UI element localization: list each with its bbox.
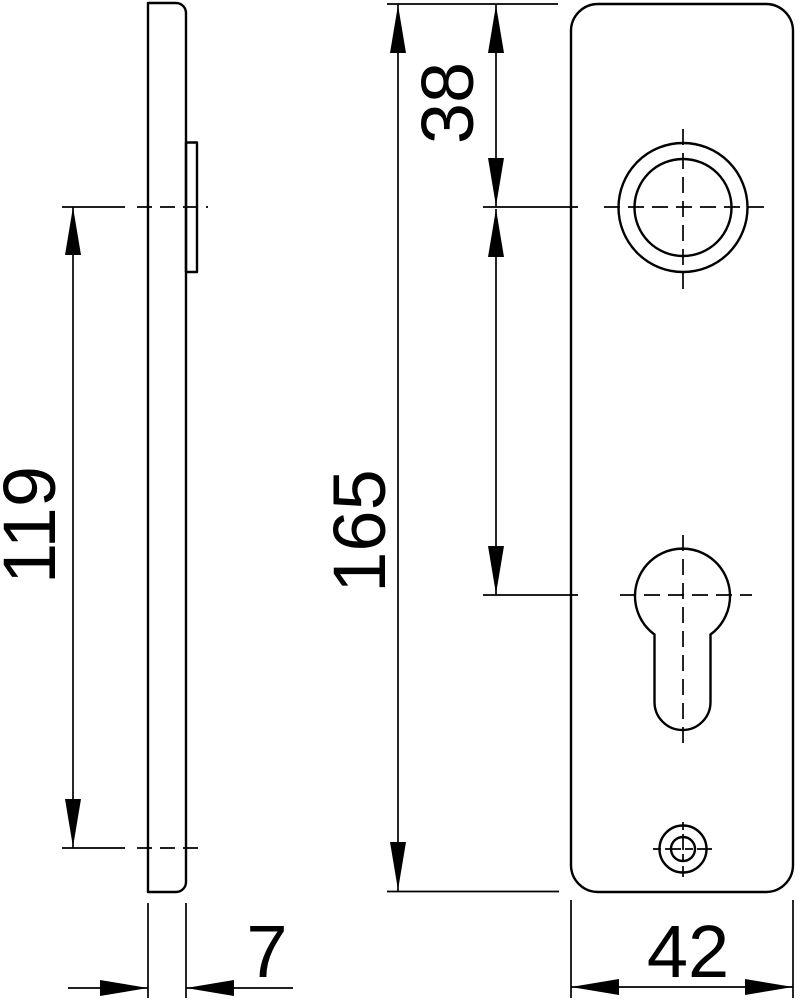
side-view: [137, 3, 208, 892]
dimension-label-7: 7: [246, 910, 287, 993]
side-plate-outline: [148, 3, 186, 892]
dim-mid-arrow-up: [488, 209, 504, 257]
front-plate-outline: [571, 4, 793, 892]
dim-42-arrow-left: [571, 979, 619, 995]
drawing-canvas: 38 165 119: [0, 0, 800, 1000]
dim-38-arrow-up: [488, 5, 504, 53]
dimension-label-42: 42: [647, 910, 729, 993]
dimension-42: 42: [571, 900, 793, 998]
dim-7-arrow-left: [100, 980, 148, 996]
dim-119-arrow-up: [65, 207, 81, 255]
dim-mid-arrow-down: [488, 546, 504, 594]
dimension-label-38: 38: [406, 62, 489, 144]
dim-38-arrow-down: [488, 158, 504, 206]
dimension-label-119: 119: [0, 466, 71, 584]
dimension-7: 7: [68, 903, 293, 998]
dimension-38: 38: [406, 4, 504, 207]
dimension-label-165: 165: [318, 469, 401, 592]
dim-119-arrow-down: [65, 799, 81, 847]
dim-7-arrow-right: [186, 980, 234, 996]
front-view: [571, 4, 793, 892]
dim-165-arrow-down: [390, 842, 406, 890]
dim-42-arrow-right: [745, 979, 793, 995]
dimension-119: 119: [0, 207, 125, 848]
dimension-hole-to-keyhole: [483, 207, 578, 595]
technical-drawing: 38 165 119: [0, 0, 800, 1000]
dim-165-arrow-up: [390, 5, 406, 53]
